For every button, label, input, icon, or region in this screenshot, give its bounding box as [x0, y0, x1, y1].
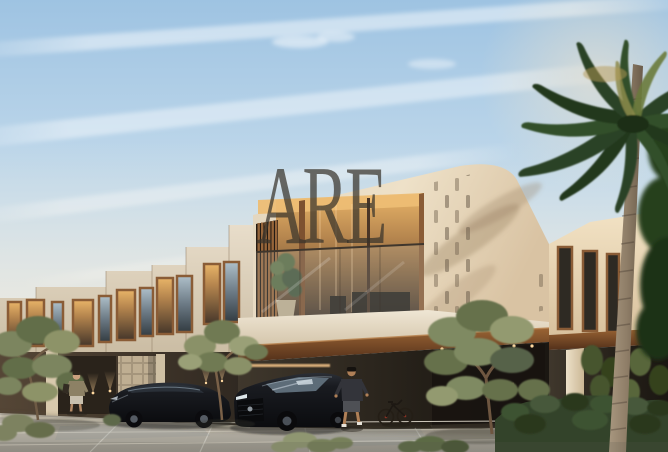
render-scene	[0, 0, 668, 452]
photo-canvas: ARE	[0, 0, 668, 452]
led-strip	[246, 364, 330, 367]
wing-windows	[558, 247, 619, 332]
balcony	[256, 193, 424, 322]
foreground-shade	[0, 442, 668, 452]
balcony-railing	[256, 244, 424, 322]
sunlit-frond-tips	[583, 66, 627, 82]
